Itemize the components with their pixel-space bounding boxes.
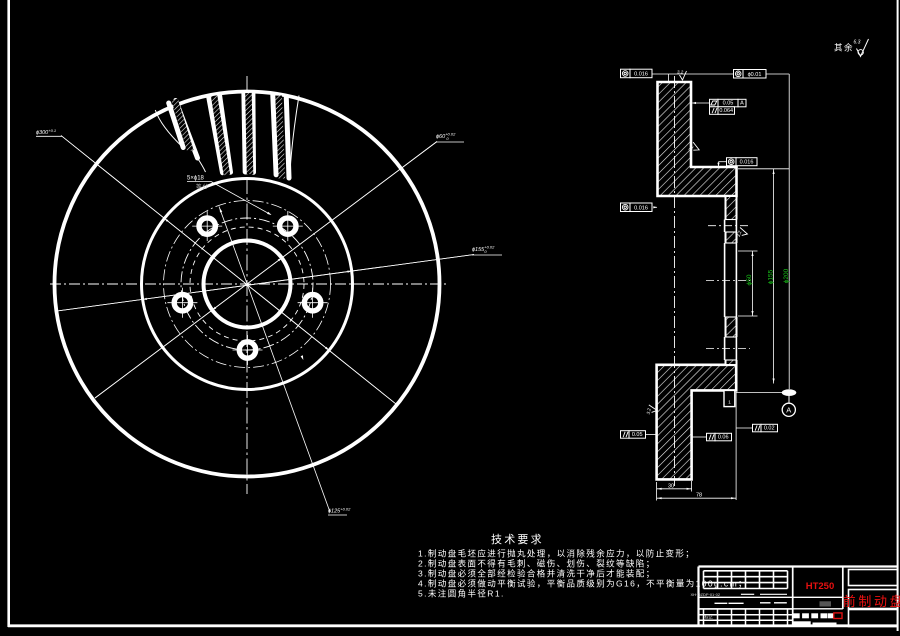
svg-text:HT250: HT250 xyxy=(806,581,835,592)
svg-text:5×ϕ18: 5×ϕ18 xyxy=(187,176,205,182)
svg-text:前制动盘: 前制动盘 xyxy=(843,594,900,609)
svg-text:0.016: 0.016 xyxy=(634,205,648,211)
svg-text:0.06: 0.06 xyxy=(718,435,729,441)
svg-text:等分: 等分 xyxy=(196,183,209,191)
svg-text:1.制动盘毛坯应进行抛丸处理，以消除残余应力，以防止变形；: 1.制动盘毛坯应进行抛丸处理，以消除残余应力，以防止变形； xyxy=(418,549,695,559)
svg-text:ϕ0.01: ϕ0.01 xyxy=(748,72,762,78)
svg-text:标记: 标记 xyxy=(705,614,713,620)
svg-text:5.未注圆角半径R1.: 5.未注圆角半径R1. xyxy=(418,589,505,599)
svg-text:ϕ155: ϕ155 xyxy=(767,269,774,284)
svg-text:ϕ50: ϕ50 xyxy=(746,274,753,285)
svg-text:78: 78 xyxy=(696,493,702,499)
svg-text:其余: 其余 xyxy=(834,43,854,53)
svg-text:A: A xyxy=(740,101,744,107)
svg-text:XH·QZDP·01·02: XH·QZDP·01·02 xyxy=(691,592,721,597)
svg-text:30: 30 xyxy=(668,483,674,489)
svg-text:6.3: 6.3 xyxy=(854,40,861,46)
svg-text:0.05: 0.05 xyxy=(723,101,734,107)
svg-text:0.05: 0.05 xyxy=(632,432,643,438)
svg-text:ϕ200: ϕ200 xyxy=(783,268,790,283)
svg-text:0.064: 0.064 xyxy=(719,108,733,114)
svg-text:A: A xyxy=(786,406,791,415)
svg-text:3.制动盘必须全部经检验合格并清洗干净后才能装配；: 3.制动盘必须全部经检验合格并清洗干净后才能装配； xyxy=(418,569,656,579)
svg-text:0.016: 0.016 xyxy=(740,160,754,166)
svg-text:0.02: 0.02 xyxy=(764,426,775,432)
svg-text:2.制动盘表面不得有毛刺、磁伤、划伤、裂纹等缺陷；: 2.制动盘表面不得有毛刺、磁伤、划伤、裂纹等缺陷； xyxy=(418,559,656,569)
svg-text:3.2: 3.2 xyxy=(677,70,684,75)
svg-text:技术要求: 技术要求 xyxy=(491,533,544,546)
svg-text:0.016: 0.016 xyxy=(634,72,648,78)
